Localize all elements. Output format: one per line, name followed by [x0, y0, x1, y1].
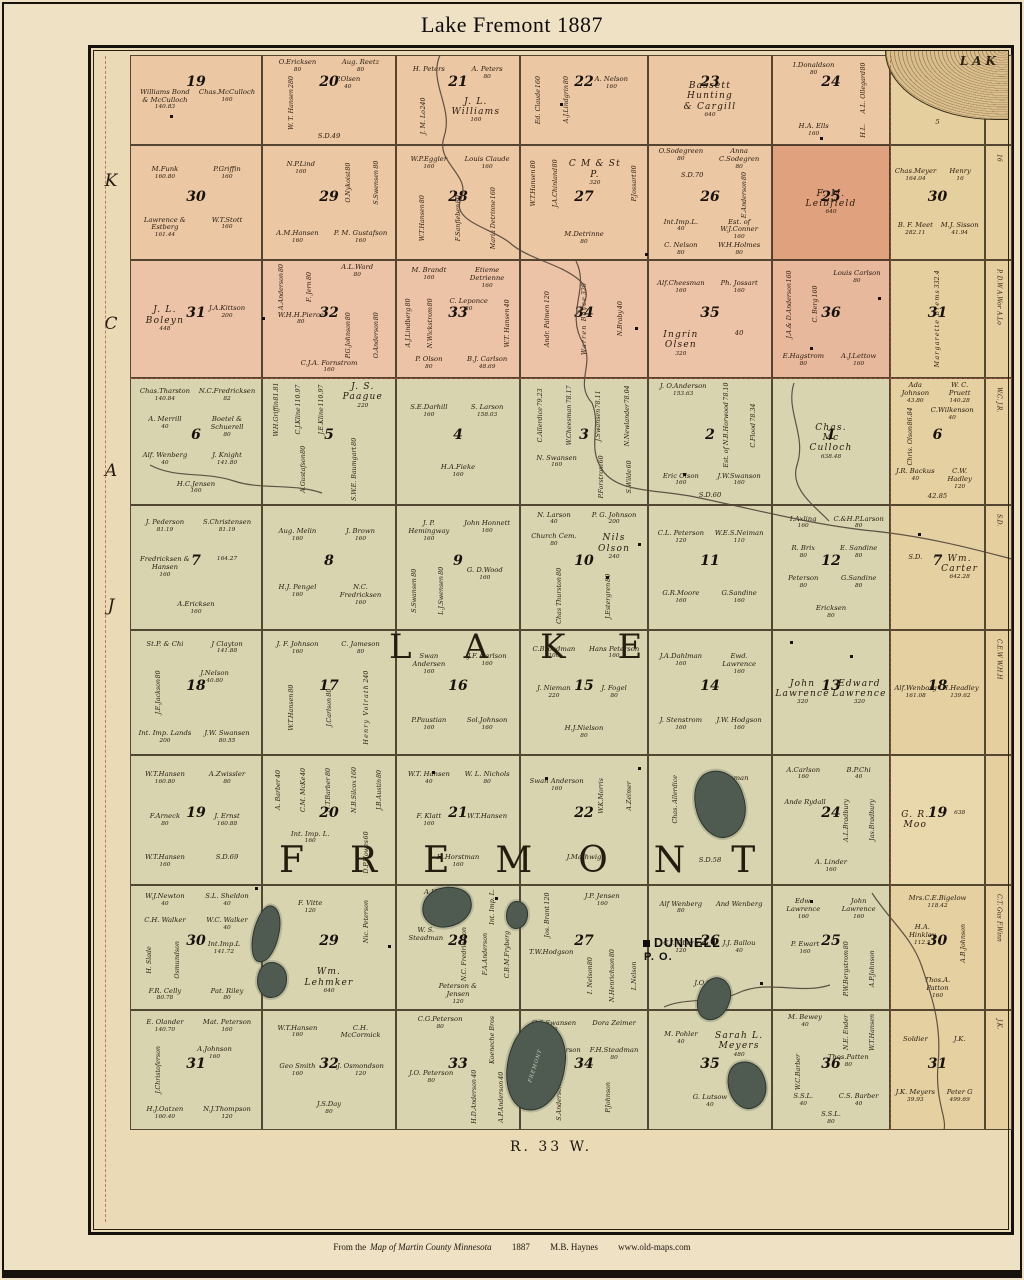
parcel-label: J.W. Hodgson160	[713, 717, 766, 732]
parcel-label: Sarah L. Meyers480	[713, 1031, 766, 1058]
parcel-label: A.Zeimer	[620, 778, 639, 814]
section-cell: John Lawrence320Edward Lawrence32013	[772, 630, 890, 755]
parcel-list: J. O.Anderson153.63Est. of N.B.Horwood78…	[649, 379, 771, 504]
parcel-label: Ph. Jossart160	[713, 280, 766, 295]
parcel-label: 5	[917, 119, 957, 127]
footer-author: M.B. Haynes	[550, 1242, 598, 1252]
parcel-label: J.S.Day80	[300, 1101, 357, 1116]
section-cell: Alf.Cheesman160Ph. Jossart160Ingrin Olse…	[648, 260, 772, 378]
parcel-label: H.Horstman160	[432, 854, 485, 869]
parcel-label: C. Leponce80	[442, 298, 495, 348]
parcel-label: L.J.Swensen80	[432, 567, 451, 615]
parcel-label: Ada Johnson43.80	[895, 382, 935, 404]
parcel-label: G.Sandine80	[834, 575, 884, 590]
section-cell: J.A.& D.Anderson160C. Berg160Louis Carls…	[772, 260, 890, 378]
parcel-label: J.A.& D.Anderson160	[780, 270, 799, 339]
parcel-label: Nic. Peterson	[357, 900, 376, 943]
margin-letter-j: J	[99, 598, 123, 615]
parcel-label: Jos. Brant120	[538, 893, 557, 938]
parcel-label: J. P. Hemingway160	[402, 520, 455, 542]
parcel-label: L.Nelson	[625, 949, 644, 1002]
farmstead-square	[850, 655, 853, 658]
parcel-label: J.W. Swansen80.55	[199, 730, 255, 745]
parcel-label: G.Sandine160	[713, 590, 766, 605]
dunnell-po-label: DUNNELL P. O.	[643, 932, 721, 964]
section-cell: A. Barber40C.M. McKe40N.T.Barber80N.B.Si…	[262, 755, 396, 885]
parcel-list: Chas.Tharston140.84N.C.Fredricksen82A. M…	[131, 379, 261, 504]
parcel-label: M. Pohler40	[654, 1031, 707, 1058]
parcel-label: J.F. Carlson160	[461, 653, 514, 675]
parcel-label: H.J.Nielson80	[557, 725, 612, 740]
parcel-label: John Honnett160	[461, 520, 514, 542]
parcel-list: A. Barber40C.M. McKe40N.T.Barber80N.B.Si…	[263, 756, 395, 884]
parcel-label: C.B.M.Fryberg	[498, 927, 517, 981]
parcel-label: Louis Carlson80	[832, 270, 882, 339]
parcel-list: H. PetersA. Peters80J. M. Lo240J. L. Wil…	[397, 56, 519, 144]
parcel-label: A.L.Bradbury	[837, 799, 856, 842]
parcel-label: S.Swansen80	[405, 567, 424, 615]
parcel-list: A.Carlson160B.P.Chi40Ande RydallA.L.Brad…	[773, 756, 889, 884]
parcel-label: B.P.Chi40	[834, 767, 884, 782]
parcel-label: A.P.Johnson	[863, 941, 882, 996]
farmstead-square	[388, 945, 391, 948]
parcel-label: J Clayton141.88	[199, 641, 255, 656]
parcel-label: Osmundson	[168, 941, 187, 979]
parcel-label: O.Ericksen80	[269, 59, 326, 74]
parcel-list: Swan Andersen160J.F. Carlson160P.Paustia…	[397, 631, 519, 754]
parcel-label: J.Swansen78.11	[589, 385, 608, 446]
parcel-label: F.Sanfleben80	[449, 187, 468, 249]
parcel-label: Chas. Mc Culloch638.48	[806, 423, 856, 461]
parcel-label: C.H. Walker	[137, 917, 193, 932]
parcel-label: Est. of W.J.Conner160	[713, 219, 766, 241]
parcel-label: W. T. Hansen280	[282, 76, 301, 130]
parcel-label: J.Nelson40.80	[186, 670, 242, 714]
parcel-label: J.Mathwig	[557, 854, 612, 862]
parcel-list: St.P. & ChiJ Clayton141.88J.E.Jackson80J…	[131, 631, 261, 754]
parcel-label: H.J. Pengel160	[269, 584, 326, 606]
parcel-label: Dora Zeimer	[587, 1020, 642, 1035]
parcel-label: J.K.	[940, 1036, 980, 1044]
parcel-list: S.D.Wm. Carter642.28	[891, 506, 984, 629]
parcel-list: Edw. Lawrence160John Lawrence160P. Ewart…	[773, 886, 889, 1009]
parcel-label: W.H.Holmes80	[713, 242, 766, 257]
parcel-label: Int. Imp. L.160	[282, 831, 339, 873]
parcel-label: J. Knight141.80	[199, 452, 255, 467]
map-edge-strip: 16	[985, 145, 1012, 260]
parcel-label: G. R. Moo	[895, 810, 935, 831]
parcel-label: J. L. Williams160	[449, 97, 502, 135]
parcel-label: J. L. Boleyn448	[137, 305, 193, 332]
parcel-label: Eric Olson160	[654, 473, 707, 488]
parcel-label: J.E.Kline110.97	[312, 382, 331, 436]
footer-prefix: From the	[333, 1242, 366, 1252]
parcel-label: G.R.Moore160	[654, 590, 707, 605]
parcel-label: Alf. Wenberg40	[137, 452, 193, 467]
dunnell-po-name: DUNNELL	[643, 936, 721, 950]
parcel-label: Koeneche Bros	[483, 1016, 502, 1064]
farmstead-square	[255, 887, 258, 890]
parcel-label: Louis Claude160	[461, 156, 514, 171]
parcel-label: Int.Imp.L.40	[654, 219, 707, 241]
parcel-label: T.W.Hodgson	[524, 949, 579, 1002]
parcel-list: Andr. Palmen120Warren Boyce320N.Braby40	[521, 261, 647, 377]
parcel-label: Alf.Wenborg161.08	[895, 685, 937, 700]
parcel-label: Ewd. Lawrence160	[713, 653, 766, 675]
parcel-label: John Lawrence320	[775, 679, 829, 706]
parcel-label: C.L. Peterson120	[654, 530, 707, 545]
parcel-label: N.Newlander78.04	[618, 385, 637, 446]
parcel-label: D.P.Howes60	[357, 831, 376, 873]
parcel-label: Boetel & Schuerell80	[199, 416, 255, 438]
parcel-list: J. P. Hemingway160John Honnett160S.Swans…	[397, 506, 519, 629]
parcel-label: S.D.58	[684, 857, 737, 865]
parcel-label: A. Linder160	[806, 859, 856, 874]
parcel-label: H. Peters	[402, 66, 455, 81]
parcel-label: 40	[713, 330, 766, 357]
parcel-label: J.B.Austin80	[370, 767, 389, 813]
parcel-label: H.L.	[854, 123, 873, 138]
parcel-label: Margarette Brems332.4	[928, 270, 947, 367]
parcel-label: S.D.69	[199, 854, 255, 869]
lake-label: FREMONT	[528, 1049, 544, 1084]
parcel-label: S.L. Sheldon40	[199, 893, 255, 908]
parcel-list: Ed. Claude160A.J.Lindgrin80A. Nelson160	[521, 56, 647, 144]
parcel-label: Alf Wenberg80	[654, 901, 707, 916]
parcel-list: Bassett Hunting & Cargill640	[649, 56, 771, 144]
parcel-label: C.W. Hadley120	[940, 468, 980, 490]
parcel-label: Andr. Palmen120	[538, 283, 557, 355]
parcel-label: P. Ewart160	[780, 941, 830, 996]
parcel-list: Aug. Melin160J. Brown160H.J. Pengel160N.…	[263, 506, 395, 629]
edge-label: 16	[994, 154, 1002, 162]
parcel-label: Sol.Johnson160	[461, 717, 514, 732]
parcel-label: J.Carlson80	[320, 671, 339, 745]
parcel-label: Chas. Allerdice	[666, 775, 685, 823]
parcel-label: N.B.Silcox160	[345, 767, 364, 813]
farmstead-square	[560, 103, 563, 106]
edge-label: A.Wor	[994, 290, 1002, 308]
parcel-label: W. L. Nichols80	[461, 771, 514, 786]
parcel-label: J. Stenstrom160	[654, 717, 707, 732]
parcel-list: Margarette Brems332.4	[891, 261, 984, 377]
parcel-label: Church Cem.80	[527, 533, 582, 560]
parcel-label: E.Hagstrom80	[778, 353, 828, 368]
parcel-label: Aug. Reetz80	[332, 59, 389, 74]
parcel-label: Maria Detrinne160	[484, 187, 503, 249]
parcel-label: J.Christoferson	[149, 1046, 168, 1094]
parcel-label: W.T.Hansen80	[413, 187, 432, 249]
parcel-label: J. Brown160	[332, 528, 389, 543]
section-cell: W.T. Hansen40W. L. Nichols80F. Klatt160W…	[396, 755, 520, 885]
parcel-label: H.A. Ells160	[789, 123, 839, 138]
section-cell: J. Pederson81.19S.Christensen81.19Fredri…	[130, 505, 262, 630]
parcel-label: W.T.Hansen160	[137, 854, 193, 869]
parcel-label: C.M. McKe40	[294, 767, 313, 813]
parcel-label: Thos.Patten80	[823, 1054, 873, 1090]
parcel-label: N.E. Ender	[837, 1014, 856, 1051]
parcel-label: Aug. Melin160	[269, 528, 326, 543]
section-cell: SoldierJ.K.J.K. Meyers39.93Peter G499.69…	[890, 1010, 985, 1130]
parcel-label: G. Lutsow40	[684, 1094, 737, 1109]
edge-label: S.D.	[994, 514, 1002, 526]
parcel-list: E. Olander140.70Mat. Peterson160J.Christ…	[131, 1011, 261, 1129]
section-cell: J. O.Anderson153.63Est. of N.B.Horwood78…	[648, 378, 772, 505]
parcel-label: S. Larson158.03	[461, 404, 514, 419]
parcel-label: A.J.Lettow160	[834, 353, 884, 368]
parcel-label: M.Detrinne80	[557, 231, 612, 246]
parcel-list: Mrs.C.E.Bigelow118.42H.A. Hinkley112.5A.…	[891, 886, 984, 1009]
parcel-list: W.T.Hansen160.80A.Zwissler80F.Arneck80J.…	[131, 756, 261, 884]
parcel-label: Ericksen80	[806, 605, 856, 620]
section-cell: G. R. Moo63819	[890, 755, 985, 885]
section-cell: J. F. Johnson160C. Jameson80W.T.Hansen80…	[262, 630, 396, 755]
parcel-label: W.T.Stott160	[199, 217, 255, 239]
parcel-label: S.S.L.40	[778, 1093, 828, 1108]
parcel-list: Ada Johnson43.80W. C. Pruett140.28Chris.…	[891, 379, 984, 504]
parcel-label: Int.Imp.L141.72	[196, 941, 252, 979]
farmstead-square	[820, 137, 823, 140]
parcel-label: J.R. Backus40	[895, 468, 935, 490]
parcel-list: O.Ericksen80Aug. Reetz80W. T. Hansen280P…	[263, 56, 395, 144]
parcel-label: C.J.Kline110.97	[289, 382, 308, 436]
parcel-label: Wm. Carter642.28	[940, 554, 980, 581]
farmstead-square	[645, 253, 648, 256]
parcel-label: A.B.Johnson	[954, 924, 973, 963]
parcel-label: M. Bewey40	[780, 1014, 830, 1051]
parcel-label: St.P. & Chi	[137, 641, 193, 656]
map-edge-strip: P. D.WA.WorA.Lo	[985, 260, 1012, 378]
parcel-label: Ingrin Olsen320	[654, 330, 707, 357]
parcel-label: F.H.Steadman80	[587, 1047, 642, 1062]
section-cell: Jos. Brant120J.P. Jensen160T.W.HodgsonI.…	[520, 885, 648, 1010]
parcel-label: And Wenberg	[713, 901, 766, 916]
parcel-label: J.A.Dahlman160	[654, 653, 707, 675]
parcel-list: J. L. Boleyn448J.A.Kittson200	[131, 261, 261, 377]
footer-source: Map of Martin County Minnesota	[370, 1242, 492, 1252]
parcel-label: Warren Boyce320	[575, 283, 594, 355]
parcel-label: N.C.Fredricksen82	[199, 388, 255, 403]
parcel-label: H.Headley139.62	[940, 685, 980, 700]
section-cell: W.H.Griffin81.81C.J.Kline110.97J.E.Kline…	[262, 378, 396, 505]
parcel-label: N.C. Fredricksen160	[332, 584, 389, 606]
section-cell: Ada Johnson43.80W. C. Pruett140.28Chris.…	[890, 378, 985, 505]
parcel-label: W.K.Morris	[592, 778, 611, 814]
parcel-label: 42.85	[917, 493, 957, 501]
parcel-label: A. Barber40	[269, 767, 288, 813]
parcel-label: S.E.Darhill160	[402, 404, 455, 419]
parcel-list: W.H.Griffin81.81C.J.Kline110.97J.E.Kline…	[263, 379, 395, 504]
section-cell: J.A.Dahlman160Ewd. Lawrence160J. Stenstr…	[648, 630, 772, 755]
parcel-label: N.J.Thompson120	[199, 1106, 255, 1121]
parcel-label: W.T. Hansen40	[498, 298, 517, 348]
parcel-label: J.E.Jackson80	[149, 670, 168, 714]
parcel-label: C.H. McCormick	[332, 1025, 389, 1041]
section-cell: H. PetersA. Peters80J. M. Lo240J. L. Wil…	[396, 55, 520, 145]
parcel-label: Chas.Meyer164.04	[895, 168, 936, 183]
parcel-label: Nils Olson240	[587, 533, 642, 560]
section-cell: Williams Bond & McCulloch140.83Chas.McCu…	[130, 55, 262, 145]
parcel-list: C.G.Peterson80Koeneche BrosJ.O. Peterson…	[397, 1011, 519, 1129]
parcel-label: J. Ernst160.88	[199, 813, 255, 828]
section-cell: A.Carlson160B.P.Chi40Ande RydallA.L.Brad…	[772, 755, 890, 885]
section-cell: Chas.Meyer164.04Henry16B. F. Meet282.11M…	[890, 145, 985, 260]
parcel-list: N.P.Lind160O.Nykoist80S.Swensen80A.M.Han…	[263, 146, 395, 259]
parcel-label: J. Nieman220	[527, 685, 582, 700]
parcel-label: J. Pederson81.19	[137, 519, 193, 534]
section-cell: O.Sodegreen80Anna C.Sodegren80S.D.70E.An…	[648, 145, 772, 260]
farmstead-square	[262, 317, 265, 320]
parcel-label: Henry Volrath240	[357, 671, 376, 745]
section-cell: M. Brandt160Etieme Detrienne160A.J.Lindb…	[396, 260, 520, 378]
parcel-label: S.D.49	[300, 133, 357, 141]
section-cell: J. P. Hemingway160John Honnett160S.Swans…	[396, 505, 520, 630]
farmstead-square	[683, 473, 686, 476]
parcel-list: M.Funk160.80P.Griffin160Lawrence & Estbe…	[131, 146, 261, 259]
parcel-label: J. S. Paague220	[334, 382, 391, 436]
parcel-label: N.P.Lind160	[272, 161, 329, 205]
parcel-label: H.A. Hinkley112.5	[902, 924, 942, 963]
parcel-label: A.L. Ollegard80	[854, 62, 873, 114]
parcel-label: W.P.Eggler160	[402, 156, 455, 171]
parcel-label: Pat. Riley80	[199, 988, 255, 1003]
edge-label: C.T.	[994, 894, 1002, 905]
parcel-label: Mrs.C.E.Bigelow118.42	[909, 895, 967, 910]
parcel-list: W.T.Hansen80J.A.Chinland80C M & St P.320…	[521, 146, 647, 259]
page-border-bottom	[2, 1270, 1022, 1276]
parcel-label: W.T.Hansen	[863, 1014, 882, 1051]
plat-grid: Williams Bond & McCulloch140.83Chas.McCu…	[130, 55, 1012, 1130]
parcel-label: O.Nykoist80	[339, 161, 358, 205]
parcel-label: Alf.Cheesman160	[654, 280, 707, 295]
section-cell: Andr. Palmen120Warren Boyce320N.Braby403…	[520, 260, 648, 378]
parcel-label: J. M. Lo240	[414, 97, 433, 135]
farmstead-square	[545, 777, 548, 780]
parcel-label: Peterson & Jensen120	[432, 983, 485, 1005]
parcel-label: P. M. Gustafson160	[332, 230, 389, 245]
dunnell-po-sub: P. O.	[644, 951, 721, 964]
edge-label: C.E.W	[994, 639, 1002, 658]
farmstead-square	[432, 771, 435, 774]
footer-caption: From theMap of Martin County Minnesota 1…	[0, 1243, 1024, 1252]
parcel-label: W.H.H.Pierce80	[272, 312, 329, 358]
parcel-label: W.J.Newton40	[137, 893, 193, 908]
farmstead-square	[790, 641, 793, 644]
section-cell: Edw. Lawrence160John Lawrence160P. Ewart…	[772, 885, 890, 1010]
parcel-label: J. F. Johnson160	[269, 641, 326, 656]
parcel-label: W.T. Hansen40	[402, 771, 455, 786]
parcel-list: O.Sodegreen80Anna C.Sodegren80S.D.70E.An…	[649, 146, 771, 259]
section-cell: E. Olander140.70Mat. Peterson160J.Christ…	[130, 1010, 262, 1130]
map-sheet: Lake Fremont 1887 Williams Bond & McCull…	[0, 0, 1024, 1280]
section-cell: I.Axling160C.&H.P.Larson80R. Brix80E. Sa…	[772, 505, 890, 630]
parcel-label: W.T.Hansen160	[269, 1025, 326, 1041]
parcel-label: A.Gustafson80	[294, 438, 313, 501]
parcel-label: S.Wilde60	[620, 455, 639, 498]
parcel-label: B.J. Carlson48.69	[461, 356, 514, 371]
map-edge-strip: W.C.J.R.	[985, 378, 1012, 505]
section-cell: C.G.Peterson80Koeneche BrosJ.O. Peterson…	[396, 1010, 520, 1130]
parcel-label: A.Zwissler80	[199, 771, 255, 786]
parcel-list: J. F. Johnson160C. Jameson80W.T.Hansen80…	[263, 631, 395, 754]
parcel-label: O.Anderson80	[367, 312, 386, 358]
map-frame: Williams Bond & McCulloch140.83Chas.McCu…	[88, 45, 1014, 1235]
parcel-label: P.G.Johnson80	[339, 312, 358, 358]
parcel-list: C.Allerdice79.23W.Cheesman78.17J.Swansen…	[521, 379, 647, 504]
parcel-list: Jos. Brant120J.P. Jensen160T.W.HodgsonI.…	[521, 886, 647, 1009]
footer-year: 1887	[512, 1242, 530, 1252]
parcel-label: Edward Lawrence320	[832, 679, 886, 706]
parcel-label: W. C. Pruett140.28	[940, 382, 980, 404]
parcel-label: Wm. Lehmker640	[300, 967, 357, 994]
parcel-label: Etieme Detrienne160	[461, 267, 514, 289]
parcel-list: M. Brandt160Etieme Detrienne160A.J.Lindb…	[397, 261, 519, 377]
parcel-label: J. O.Anderson153.63	[657, 383, 710, 468]
parcel-label: H.J.Oatzen160.40	[137, 1106, 193, 1121]
parcel-label: S.Swensen80	[367, 161, 386, 205]
parcel-list: S.E.Darhill160S. Larson158.03H.A.Fieke16…	[397, 379, 519, 504]
range-label: R. 33 W.	[441, 1140, 661, 1154]
parcel-label: P.Johnson	[599, 1075, 618, 1121]
parcel-label: F.A.Anderson	[476, 927, 495, 981]
parcel-label: C. Nelson80	[654, 242, 707, 257]
section-cell: Ed. Claude160A.J.Lindgrin80A. Nelson1602…	[520, 55, 648, 145]
parcel-label: W.H.Griffin81.81	[267, 382, 286, 436]
parcel-label: J.A.Chinland80	[546, 159, 565, 207]
section-cell: C.Allerdice79.23W.Cheesman78.17J.Swansen…	[520, 378, 648, 505]
section-cell: O.Ericksen80Aug. Reetz80W. T. Hansen280P…	[262, 55, 396, 145]
parcel-label: W.T.Hansen	[461, 813, 514, 828]
parcel-label: Ed. Claude160	[529, 76, 548, 124]
parcel-label: G. D.Wood160	[458, 567, 511, 615]
parcel-label: A.J.Lindgrin80	[557, 76, 576, 124]
parcel-label: M. Brandt160	[402, 267, 455, 289]
edge-label: Gus	[994, 907, 1002, 919]
parcel-list: N. Larson40P. G. Johnson200Church Cem.80…	[521, 506, 647, 629]
corner-lake-label: LAK	[960, 55, 1000, 67]
parcel-label: A. Peters80	[461, 66, 514, 81]
parcel-label: Edw. Lawrence160	[778, 898, 828, 920]
map-edge-strip	[985, 755, 1012, 885]
parcel-label: O.Sodegreen80	[654, 148, 707, 170]
parcel-label: S.W.E. Baumgart80	[345, 438, 364, 501]
parcel-label: A.L.Ward80	[329, 264, 386, 310]
parcel-list: Chas. Mc Culloch638.48	[773, 379, 889, 504]
parcel-label: W.Cheesman78.17	[560, 385, 579, 446]
edge-label: J.K.	[994, 1019, 1002, 1029]
parcel-label: M.Funk160.80	[137, 166, 193, 181]
parcel-label: Int. Imp. Lands200	[137, 730, 193, 745]
parcel-label: I. Nelson80	[581, 949, 600, 1002]
parcel-list: I.Donaldson80A.L. Ollegard80H.A. Ells160…	[773, 56, 889, 144]
parcel-label: F. M. Leibfield640	[806, 189, 857, 216]
parcel-label: B. F. Meet282.11	[895, 222, 935, 237]
parcel-list: Chas.Meyer164.04Henry16B. F. Meet282.11M…	[891, 146, 984, 259]
parcel-label: C M & St P.320	[568, 159, 623, 207]
parcel-label: N.T.Barber80	[319, 767, 338, 813]
section-cell: Bassett Hunting & Cargill64023	[648, 55, 772, 145]
parcel-label: J.A.Kittson200	[199, 305, 255, 332]
parcel-label: Soldier	[895, 1036, 935, 1044]
farmstead-square	[635, 327, 638, 330]
parcel-label: N.Wickstrom80	[421, 298, 440, 348]
parcel-label: F. Klatt160	[402, 813, 455, 828]
parcel-label: P.Olsen40	[319, 76, 376, 130]
parcel-label: A.Carlson160	[778, 767, 828, 782]
parcel-list: J.A.& D.Anderson160C. Berg160Louis Carls…	[773, 261, 889, 377]
parcel-label: Chas.Tharston140.84	[137, 388, 193, 403]
parcel-list: W.T.Hansen160C.H. McCormickGeo Smith160J…	[263, 1011, 395, 1129]
